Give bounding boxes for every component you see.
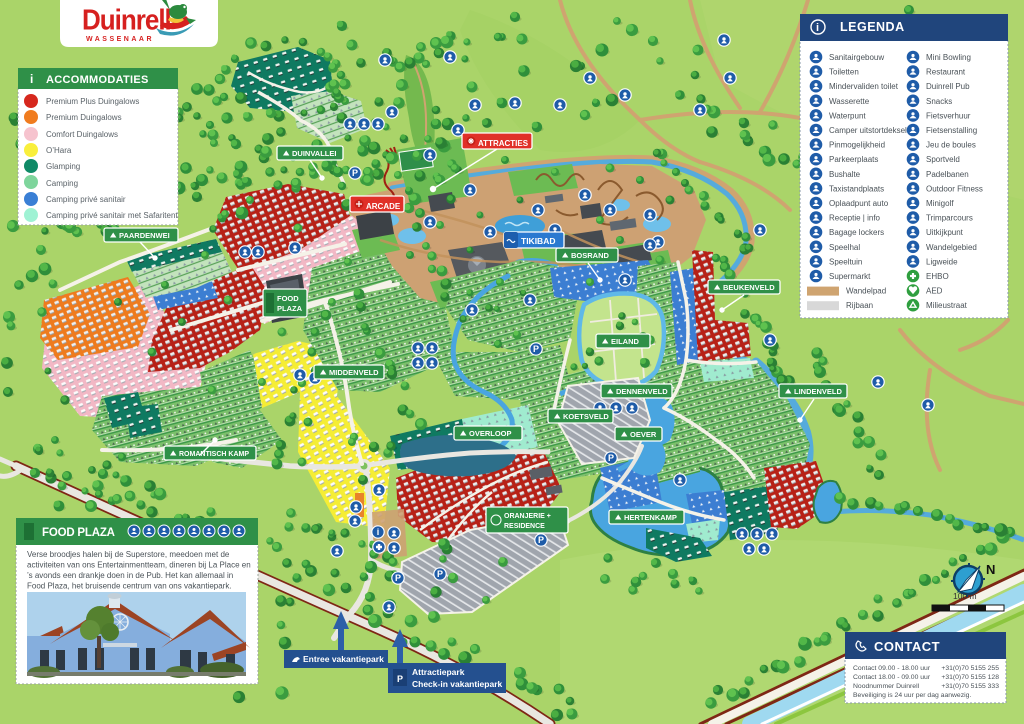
svg-text:Bagage lockers: Bagage lockers — [829, 228, 884, 237]
svg-text:BOSRAND: BOSRAND — [571, 251, 610, 260]
svg-text:P: P — [395, 573, 401, 583]
svg-text:P: P — [352, 168, 358, 178]
svg-text:Noodnummer Duinrell: Noodnummer Duinrell — [853, 683, 920, 690]
svg-text:Uitkijkpunt: Uitkijkpunt — [926, 228, 964, 237]
svg-text:OVERLOOP: OVERLOOP — [469, 429, 512, 438]
svg-text:activiteiten van ons Entertain: activiteiten van ons Entertainmentteam, … — [27, 561, 251, 570]
svg-text:RESIDENCE: RESIDENCE — [504, 523, 545, 530]
svg-text:+31(0)70 5155 333: +31(0)70 5155 333 — [941, 683, 999, 690]
svg-text:KOETSVELD: KOETSVELD — [563, 412, 609, 421]
svg-text:O’Hara: O’Hara — [46, 146, 72, 155]
svg-text:+31(0)70 5155 255: +31(0)70 5155 255 — [941, 665, 999, 672]
svg-text:Entree vakantiepark: Entree vakantiepark — [303, 654, 384, 664]
svg-text:Waterpunt: Waterpunt — [829, 111, 866, 120]
svg-text:Verse broodjes halen bij de Su: Verse broodjes halen bij de Superstore, … — [27, 550, 230, 559]
svg-text:Duinrell Pub: Duinrell Pub — [926, 82, 970, 91]
svg-text:Restaurant: Restaurant — [926, 68, 966, 77]
svg-text:PAARDENWEI: PAARDENWEI — [119, 231, 170, 240]
svg-text:P: P — [608, 453, 614, 463]
svg-text:Duinrell: Duinrell — [82, 4, 171, 36]
svg-text:DUINVALLEI: DUINVALLEI — [292, 149, 336, 158]
svg-text:i: i — [30, 72, 33, 86]
svg-text:Wandelpad: Wandelpad — [846, 287, 886, 296]
svg-text:ARCADE: ARCADE — [366, 202, 401, 211]
svg-text:Toiletten: Toiletten — [829, 68, 859, 77]
svg-text:PLAZA: PLAZA — [277, 304, 303, 313]
svg-text:ATTRACTIES: ATTRACTIES — [478, 139, 529, 148]
svg-text:Camper uitstortdeksel: Camper uitstortdeksel — [829, 126, 907, 135]
svg-text:Ligweide: Ligweide — [926, 257, 958, 266]
svg-text:Premium Plus Duingalows: Premium Plus Duingalows — [46, 97, 139, 106]
svg-text:Bushalte: Bushalte — [829, 170, 861, 179]
svg-text:’s avonds een drankje doen in: ’s avonds een drankje doen in de Pub. He… — [27, 571, 233, 580]
svg-text:Rijbaan: Rijbaan — [846, 301, 873, 310]
svg-text:Contact 09.00 - 18.00 uur: Contact 09.00 - 18.00 uur — [853, 665, 931, 672]
svg-text:Speelhal: Speelhal — [829, 243, 860, 252]
svg-text:Food Plaza, het bruisende cent: Food Plaza, het bruisende centrum van on… — [27, 582, 232, 591]
svg-text:TIKIBAD: TIKIBAD — [521, 236, 555, 246]
svg-text:WASSENAAR: WASSENAAR — [86, 36, 154, 43]
svg-text:FOOD: FOOD — [277, 294, 299, 303]
svg-text:ORANJERIE +: ORANJERIE + — [504, 513, 551, 520]
svg-text:ACCOMMODATIES: ACCOMMODATIES — [46, 74, 149, 86]
svg-text:Minigolf: Minigolf — [926, 199, 954, 208]
svg-text:Oplaadpunt auto: Oplaadpunt auto — [829, 199, 889, 208]
svg-text:EHBO: EHBO — [926, 272, 949, 281]
svg-text:MIDDENVELD: MIDDENVELD — [329, 368, 379, 377]
svg-text:ROMANTISCH KAMP: ROMANTISCH KAMP — [179, 451, 249, 458]
svg-text:Snacks: Snacks — [926, 97, 952, 106]
svg-text:Premium Duingalows: Premium Duingalows — [46, 113, 122, 122]
svg-text:LEGENDA: LEGENDA — [840, 20, 905, 34]
svg-text:P: P — [533, 344, 539, 354]
svg-text:Mini Bowling: Mini Bowling — [926, 53, 971, 62]
svg-text:+31(0)70 5155 128: +31(0)70 5155 128 — [941, 674, 999, 681]
svg-text:Milieustraat: Milieustraat — [926, 301, 968, 310]
svg-text:Glamping: Glamping — [46, 162, 80, 171]
svg-text:i: i — [816, 22, 819, 34]
svg-text:Receptie | info: Receptie | info — [829, 214, 881, 223]
svg-text:OEVER: OEVER — [630, 430, 657, 439]
svg-text:CONTACT: CONTACT — [874, 639, 940, 654]
svg-text:Padelbanen: Padelbanen — [926, 170, 969, 179]
svg-text:Parkeerplaats: Parkeerplaats — [829, 155, 878, 164]
svg-text:Taxistandplaats: Taxistandplaats — [829, 184, 884, 193]
svg-text:FOOD PLAZA: FOOD PLAZA — [42, 527, 115, 539]
svg-text:AED: AED — [926, 287, 943, 296]
svg-text:Camping privé sanitair met Saf: Camping privé sanitair met Safaritent — [46, 211, 178, 220]
svg-text:EILAND: EILAND — [611, 337, 640, 346]
svg-text:Camping: Camping — [46, 179, 78, 188]
svg-text:Speeltuin: Speeltuin — [829, 257, 862, 266]
svg-text:Jeu de boules: Jeu de boules — [926, 141, 976, 150]
svg-text:Supermarkt: Supermarkt — [829, 272, 871, 281]
svg-text:Attractiepark: Attractiepark — [412, 667, 465, 677]
svg-text:Sanitairgebouw: Sanitairgebouw — [829, 53, 884, 62]
svg-text:Fietsverhuur: Fietsverhuur — [926, 111, 971, 120]
svg-text:Sportveld: Sportveld — [926, 155, 960, 164]
svg-text:Comfort Duingalows: Comfort Duingalows — [46, 130, 118, 139]
svg-text:DENNENVELD: DENNENVELD — [616, 387, 668, 396]
svg-text:Pinmogelijkheid: Pinmogelijkheid — [829, 141, 885, 150]
svg-text:100 m: 100 m — [953, 591, 977, 601]
svg-text:BEUKENVELD: BEUKENVELD — [723, 283, 775, 292]
svg-text:N: N — [986, 562, 995, 577]
svg-text:Camping privé sanitair: Camping privé sanitair — [46, 195, 126, 204]
svg-text:Mindervaliden toilet: Mindervaliden toilet — [829, 82, 899, 91]
svg-text:Contact 18.00 - 09.00 uur: Contact 18.00 - 09.00 uur — [853, 674, 931, 681]
svg-text:P: P — [437, 569, 443, 579]
svg-text:P: P — [538, 535, 544, 545]
svg-text:Check-in vakantiepark: Check-in vakantiepark — [412, 679, 503, 689]
svg-text:Outdoor Fitness: Outdoor Fitness — [926, 184, 983, 193]
svg-text:HERTENKAMP: HERTENKAMP — [624, 513, 677, 522]
svg-text:Fietsenstalling: Fietsenstalling — [926, 126, 977, 135]
svg-text:P: P — [397, 674, 403, 684]
svg-text:Trimparcours: Trimparcours — [926, 214, 973, 223]
svg-text:Beveiliging is 24 uur per dag: Beveiliging is 24 uur per dag aanwezig. — [853, 692, 971, 699]
svg-text:LINDENVELD: LINDENVELD — [794, 387, 843, 396]
svg-text:i: i — [377, 527, 380, 537]
svg-text:Wandelgebied: Wandelgebied — [926, 243, 977, 252]
svg-text:Wasserette: Wasserette — [829, 97, 870, 106]
